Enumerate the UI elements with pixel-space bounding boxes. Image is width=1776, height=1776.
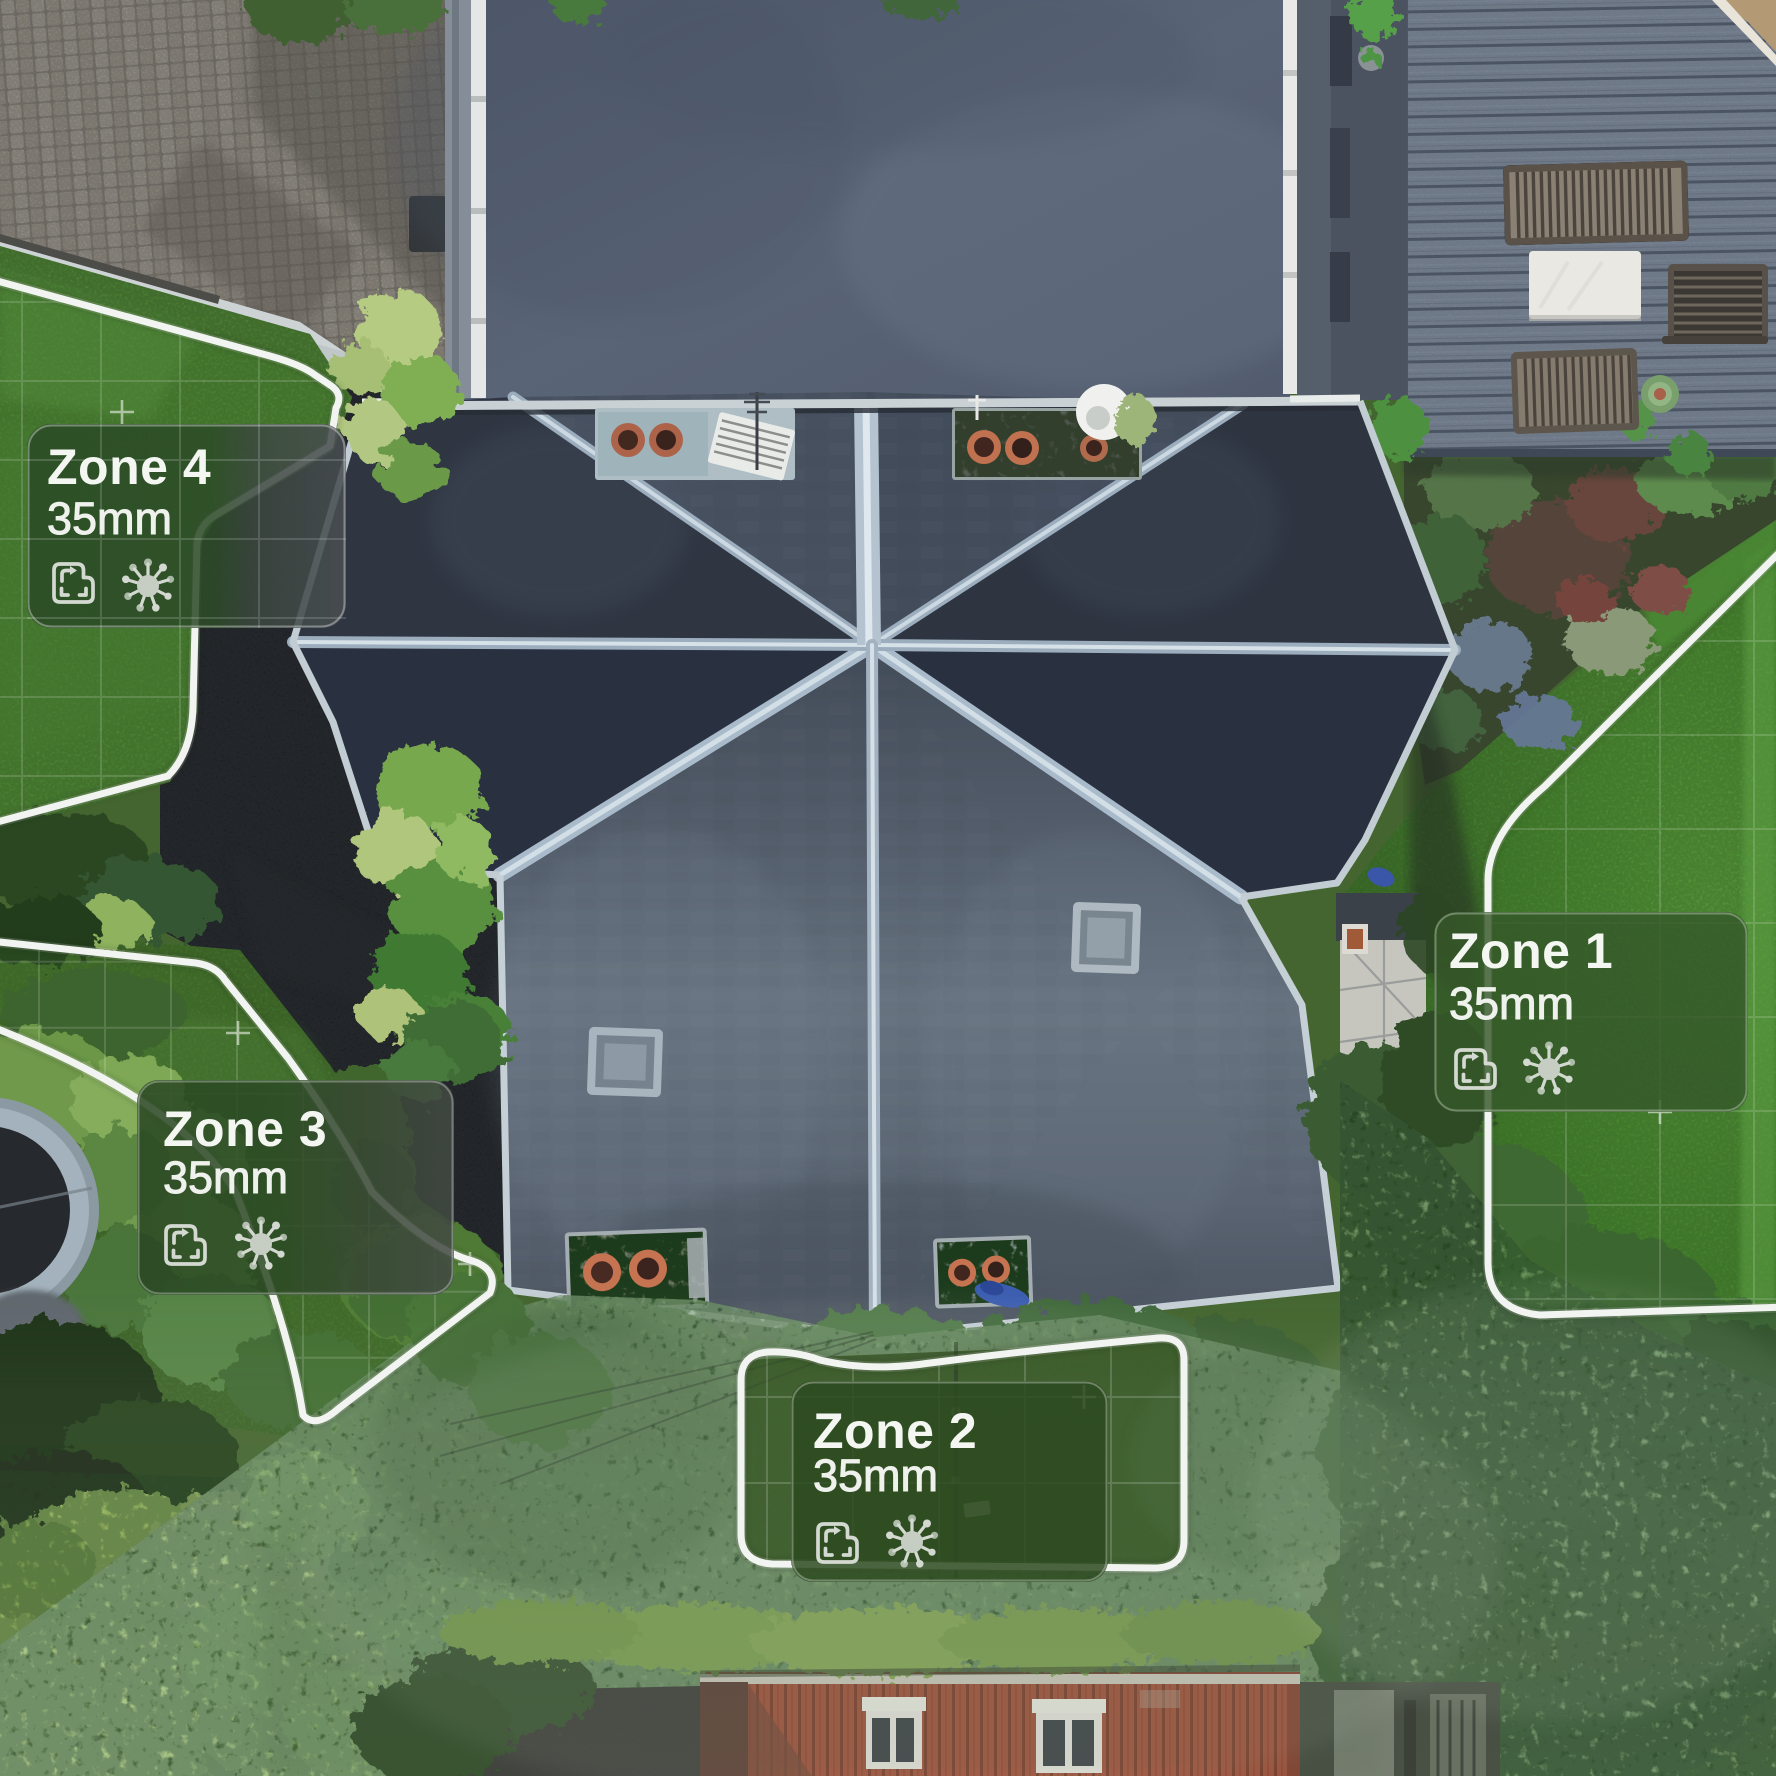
svg-text:Zone 4: Zone 4 bbox=[47, 439, 211, 495]
svg-text:35mm: 35mm bbox=[47, 493, 172, 544]
svg-text:Zone 1: Zone 1 bbox=[1449, 923, 1613, 979]
svg-text:Zone 3: Zone 3 bbox=[163, 1101, 327, 1157]
svg-text:35mm: 35mm bbox=[163, 1152, 288, 1203]
svg-text:35mm: 35mm bbox=[813, 1450, 938, 1501]
svg-text:35mm: 35mm bbox=[1449, 978, 1574, 1029]
